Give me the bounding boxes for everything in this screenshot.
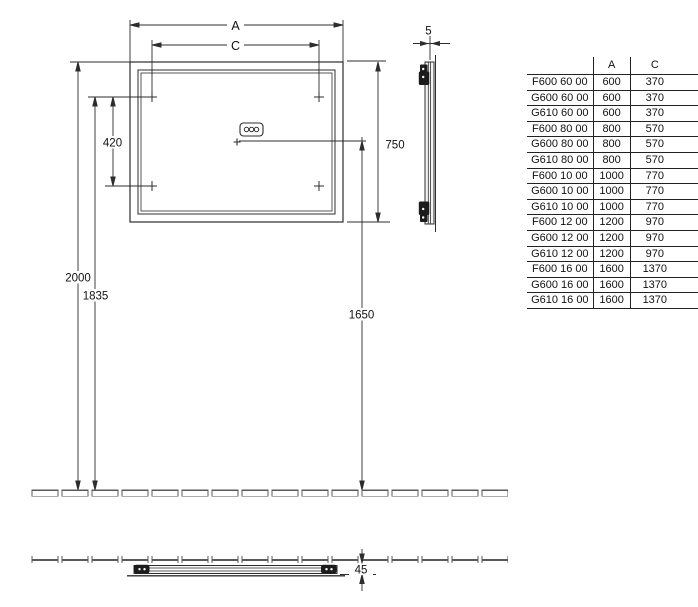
header-model [527, 57, 593, 75]
plan-view: 45 [30, 549, 508, 591]
spec-table-header-row: A C [527, 57, 698, 75]
cell-model: G600 12 00 [527, 230, 593, 246]
dim-C: C [152, 39, 319, 53]
header-c: C [630, 57, 698, 75]
table-row: G610 80 00800570 [527, 152, 698, 168]
mirror-profile [425, 62, 434, 224]
dim-1650-label: 1650 [349, 310, 375, 322]
cell-model: G600 60 00 [527, 90, 593, 106]
cell-model: F600 60 00 [527, 75, 593, 91]
dim-1835: 1835 [79, 97, 112, 490]
cell-model: F600 12 00 [527, 215, 593, 231]
spec-table-body: F600 60 00600370G600 60 00600370G610 60 … [527, 75, 698, 309]
table-row: G600 16 0016001370 [527, 277, 698, 293]
table-row: G600 80 00800570 [527, 137, 698, 153]
cell-a: 800 [593, 152, 630, 168]
cell-c: 1370 [630, 277, 698, 293]
dim-750-label: 750 [385, 140, 404, 152]
table-row: F600 12 001200970 [527, 215, 698, 231]
dim-1835-label: 1835 [83, 291, 109, 303]
dim-45: 45 [340, 549, 376, 591]
table-row: F600 80 00800570 [527, 121, 698, 137]
cell-a: 1000 [593, 184, 630, 200]
table-row: G610 60 00600370 [527, 106, 698, 122]
dim-420-label: 420 [103, 138, 122, 150]
cell-model: F600 16 00 [527, 262, 593, 278]
drawing-canvas: A C 2000 [0, 0, 520, 607]
cell-model: G600 80 00 [527, 137, 593, 153]
cell-a: 1000 [593, 168, 630, 184]
dim-5: 5 [413, 26, 450, 61]
table-row: G600 60 00600370 [527, 90, 698, 106]
cell-c: 370 [630, 90, 698, 106]
table-row: G610 10 001000770 [527, 199, 698, 215]
wall-tiles-plan [30, 556, 508, 563]
cell-a: 1600 [593, 262, 630, 278]
header-a: A [593, 57, 630, 75]
cell-model: G610 80 00 [527, 152, 593, 168]
cell-c: 1370 [630, 262, 698, 278]
dim-45-label: 45 [355, 565, 368, 577]
cell-c: 370 [630, 106, 698, 122]
cell-c: 570 [630, 152, 698, 168]
cell-model: G610 16 00 [527, 293, 593, 309]
cell-a: 1200 [593, 246, 630, 262]
side-view: 5 [413, 26, 450, 233]
cell-c: 1370 [630, 293, 698, 309]
table-row: G600 12 001200970 [527, 230, 698, 246]
cell-a: 800 [593, 137, 630, 153]
cell-c: 570 [630, 137, 698, 153]
cell-model: G600 16 00 [527, 277, 593, 293]
table-row: G600 10 001000770 [527, 184, 698, 200]
dim-A: A [130, 19, 343, 33]
cell-a: 1200 [593, 230, 630, 246]
cell-c: 570 [630, 121, 698, 137]
cell-c: 970 [630, 215, 698, 231]
cell-model: G610 12 00 [527, 246, 593, 262]
dim-5-label: 5 [425, 26, 431, 38]
cell-a: 1600 [593, 293, 630, 309]
cell-model: F600 80 00 [527, 121, 593, 137]
cell-model: F600 10 00 [527, 168, 593, 184]
dim-1650: 1650 [345, 137, 378, 490]
cell-a: 1200 [593, 215, 630, 231]
table-row: G610 16 0016001370 [527, 293, 698, 309]
plan-bracket-left [134, 565, 150, 574]
cell-model: G600 10 00 [527, 184, 593, 200]
table-row: G610 12 001200970 [527, 246, 698, 262]
technical-drawing-page: A C 2000 [0, 0, 698, 607]
dim-C-label: C [231, 39, 240, 53]
cell-c: 970 [630, 230, 698, 246]
cell-a: 800 [593, 121, 630, 137]
mirror-plan-body [134, 566, 337, 574]
cell-c: 770 [630, 168, 698, 184]
floor-line [30, 490, 508, 497]
table-row: F600 16 0016001370 [527, 262, 698, 278]
plan-bracket-right [321, 565, 337, 574]
cell-c: 370 [630, 75, 698, 91]
dim-A-label: A [231, 19, 240, 33]
cell-model: G610 10 00 [527, 199, 593, 215]
dim-420: 420 [99, 97, 127, 186]
table-row: F600 60 00600370 [527, 75, 698, 91]
spec-table: A C F600 60 00600370G600 60 00600370G610… [527, 57, 698, 309]
cell-c: 770 [630, 199, 698, 215]
dim-2000: 2000 [61, 62, 94, 490]
cell-a: 600 [593, 106, 630, 122]
cell-a: 600 [593, 90, 630, 106]
front-view [130, 62, 343, 222]
junction-box [234, 123, 264, 146]
cell-c: 970 [630, 246, 698, 262]
cell-model: G610 60 00 [527, 106, 593, 122]
cell-a: 600 [593, 75, 630, 91]
table-row: F600 10 001000770 [527, 168, 698, 184]
cell-a: 1000 [593, 199, 630, 215]
cell-a: 1600 [593, 277, 630, 293]
dim-750: 750 [376, 62, 409, 222]
dim-2000-label: 2000 [65, 273, 91, 285]
junction-center-cross [234, 139, 241, 146]
dimension-lines: A C 2000 [61, 19, 409, 490]
cell-c: 770 [630, 184, 698, 200]
